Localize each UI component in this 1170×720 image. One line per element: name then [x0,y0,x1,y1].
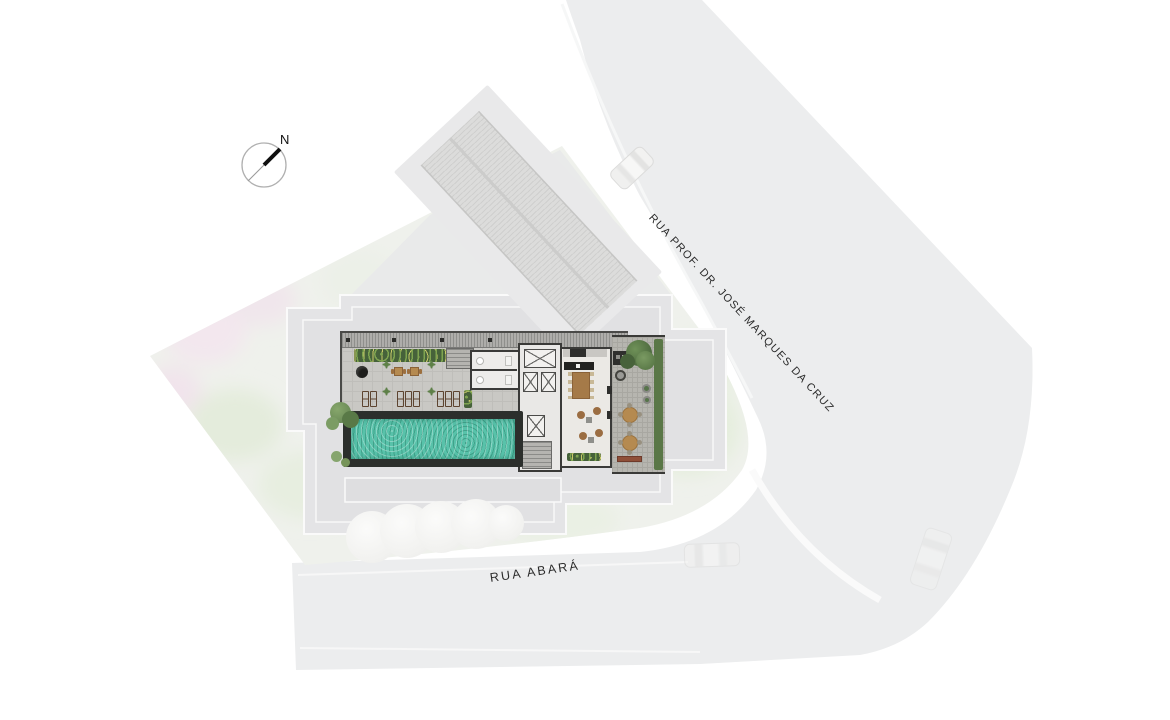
sun-lounger [437,391,444,407]
dining-table [619,432,641,454]
dining-chairs [590,372,594,399]
long-table [572,372,590,399]
planter [567,453,601,461]
fire-table [356,366,368,378]
car-icon [684,542,741,568]
site-plan-canvas: N RUA PROF. DR. JOSÉ MARQUES DA CRUZ RUA… [0,0,1170,720]
pergola-edge [342,331,628,348]
pool [351,419,515,459]
planter-strip [354,349,446,362]
plant-icon [429,362,434,367]
elevator [524,349,556,368]
toilet-fixture [505,356,512,366]
sun-lounger [445,391,452,407]
sun-lounger [397,391,404,407]
elevator [523,372,538,392]
side-table [586,417,592,423]
compass-north-label: N [280,132,289,147]
elevator [527,415,545,437]
sun-lounger [370,391,377,407]
stairwell [522,441,552,469]
cabinet-dark [570,349,586,357]
planter [464,390,472,408]
column [392,338,396,342]
bistro-table [410,366,422,377]
plant-icon [429,389,434,394]
circulation-core [518,343,562,472]
bench [617,456,642,462]
bar-counter [564,362,594,370]
potted-plant [643,396,651,404]
tree-icon [488,505,524,541]
stool [593,407,601,415]
bistro-table [394,366,406,377]
bathrooms [470,350,520,390]
column [346,338,350,342]
sun-lounger [453,391,460,407]
tree-icon [618,338,660,380]
column [488,338,492,342]
column [440,338,444,342]
sink-fixture [476,376,484,384]
north-arrow-icon [239,140,289,190]
stool [577,411,585,419]
gourmet-room [560,347,612,468]
potted-plant [642,384,651,393]
plant-icon [384,362,389,367]
toilet-fixture [505,375,512,385]
sun-lounger [413,391,420,407]
elevator [541,372,556,392]
shrub [341,458,350,467]
plant-icon [384,389,389,394]
sun-lounger [405,391,412,407]
sink-fixture [476,357,484,365]
stool [579,432,587,440]
side-table [588,437,594,443]
dining-table [619,404,641,426]
lower-canopy [345,478,561,502]
stool [595,429,603,437]
tree-icon [326,398,368,440]
